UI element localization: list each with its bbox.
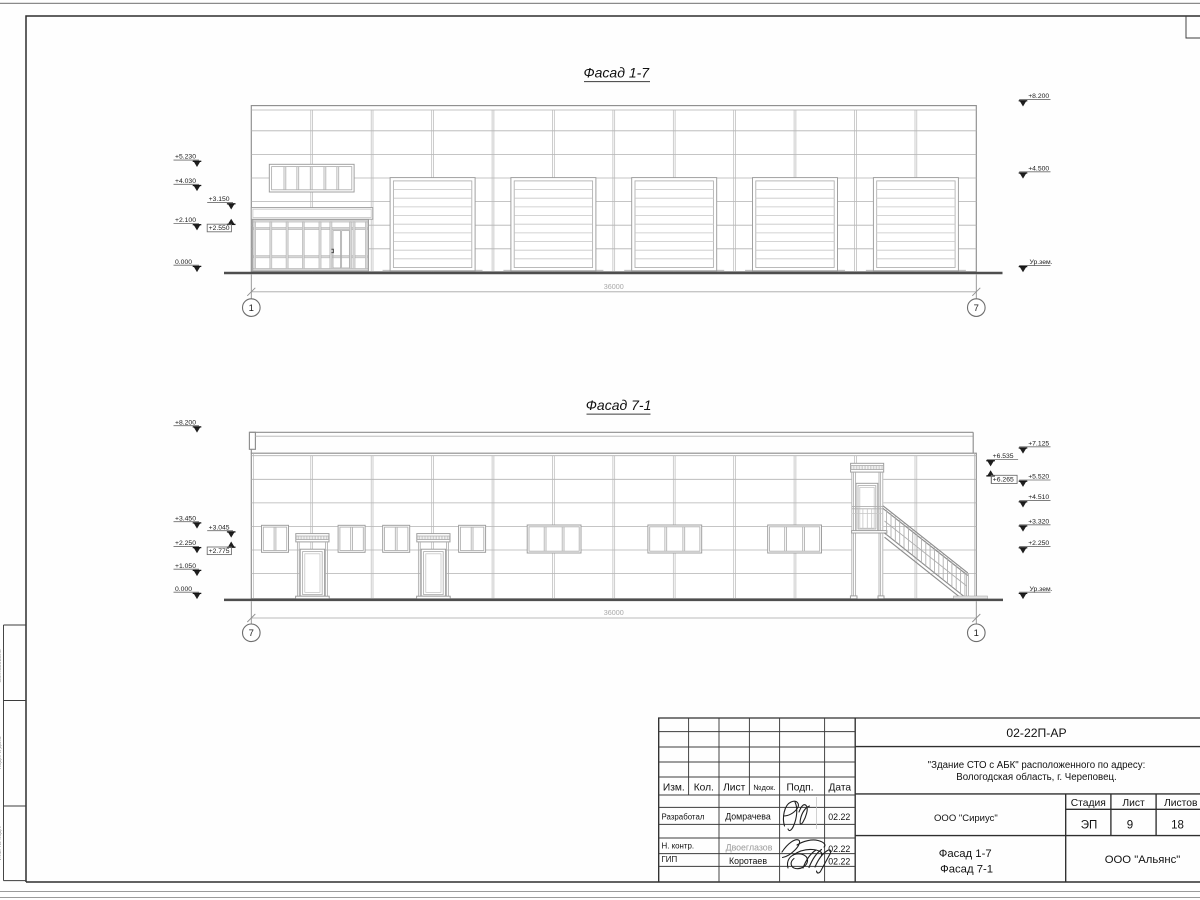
- svg-text:+6.535: +6.535: [993, 453, 1014, 460]
- svg-text:18: 18: [1171, 819, 1184, 831]
- svg-text:+6.265: +6.265: [993, 477, 1014, 484]
- svg-text:+2.250: +2.250: [1028, 540, 1049, 547]
- svg-text:Подп.: Подп.: [786, 783, 813, 794]
- svg-text:1: 1: [974, 628, 979, 639]
- svg-text:+2.775: +2.775: [209, 548, 230, 555]
- svg-text:№док.: №док.: [753, 783, 775, 792]
- svg-text:ГИП: ГИП: [662, 855, 678, 864]
- svg-text:Фасад 7-1: Фасад 7-1: [940, 863, 993, 875]
- svg-text:+1.050: +1.050: [175, 563, 196, 570]
- svg-text:+4.500: +4.500: [1028, 165, 1049, 172]
- svg-text:Инв. № подл.: Инв. № подл.: [0, 825, 3, 860]
- svg-text:"Здание СТО с АБК" расположенн: "Здание СТО с АБК" расположенного по адр…: [928, 760, 1146, 771]
- svg-text:02.22: 02.22: [828, 857, 850, 867]
- svg-text:Ур.зем.: Ур.зем.: [1030, 259, 1053, 266]
- svg-text:+5.520: +5.520: [1028, 474, 1049, 481]
- svg-text:ООО "Альянс": ООО "Альянс": [1105, 854, 1181, 866]
- svg-text:+3.045: +3.045: [209, 524, 230, 531]
- svg-text:0.000: 0.000: [175, 586, 192, 593]
- svg-text:Фасад 7-1: Фасад 7-1: [586, 397, 652, 413]
- svg-text:Двоеглазов: Двоеглазов: [726, 843, 773, 853]
- svg-text:Фасад 1-7: Фасад 1-7: [584, 65, 651, 81]
- svg-text:7: 7: [974, 303, 979, 314]
- svg-text:1: 1: [249, 303, 254, 314]
- svg-text:0.000: 0.000: [175, 259, 192, 266]
- svg-text:Дата: Дата: [829, 783, 852, 794]
- svg-text:+2.550: +2.550: [209, 225, 230, 232]
- svg-text:36000: 36000: [604, 608, 624, 617]
- svg-text:+5.230: +5.230: [175, 154, 196, 161]
- svg-text:Вологодская область, г. Черепо: Вологодская область, г. Череповец.: [956, 772, 1116, 783]
- svg-text:+3.450: +3.450: [175, 515, 196, 522]
- svg-text:+3.150: +3.150: [209, 196, 230, 203]
- svg-text:Стадия: Стадия: [1071, 798, 1106, 809]
- svg-text:02-22П-АР: 02-22П-АР: [1006, 726, 1066, 740]
- svg-text:Ур.зем.: Ур.зем.: [1030, 586, 1053, 593]
- svg-text:ООО "Сириус": ООО "Сириус": [934, 813, 998, 824]
- svg-text:Лист: Лист: [723, 783, 745, 794]
- svg-text:Фасад 1-7: Фасад 1-7: [939, 848, 992, 860]
- svg-text:Кол.: Кол.: [694, 783, 714, 794]
- svg-text:+8.200: +8.200: [175, 419, 196, 426]
- svg-text:+7.125: +7.125: [1028, 440, 1049, 447]
- svg-text:Лист: Лист: [1122, 798, 1145, 809]
- svg-text:ЭП: ЭП: [1081, 819, 1098, 831]
- svg-text:+2.100: +2.100: [175, 217, 196, 224]
- svg-text:Подп. и дата: Подп. и дата: [0, 736, 3, 770]
- svg-text:9: 9: [1127, 819, 1133, 831]
- svg-text:Н. контр.: Н. контр.: [662, 841, 695, 850]
- svg-text:+3.320: +3.320: [1028, 518, 1049, 525]
- svg-text:Домрачева: Домрачева: [725, 812, 771, 822]
- svg-text:+8.200: +8.200: [1028, 93, 1049, 100]
- svg-text:Согласовано: Согласовано: [0, 649, 3, 683]
- svg-text:+2.250: +2.250: [175, 540, 196, 547]
- svg-text:Коротаев: Коротаев: [729, 856, 767, 866]
- svg-text:+4.510: +4.510: [1028, 494, 1049, 501]
- svg-text:36000: 36000: [604, 282, 624, 291]
- svg-text:Листов: Листов: [1164, 798, 1198, 809]
- svg-text:Изм.: Изм.: [663, 783, 685, 794]
- svg-text:+4.030: +4.030: [175, 178, 196, 185]
- svg-text:7: 7: [249, 628, 254, 639]
- svg-text:Разработал: Разработал: [662, 813, 705, 822]
- svg-text:02.22: 02.22: [828, 812, 850, 822]
- svg-text:02.22: 02.22: [828, 844, 850, 854]
